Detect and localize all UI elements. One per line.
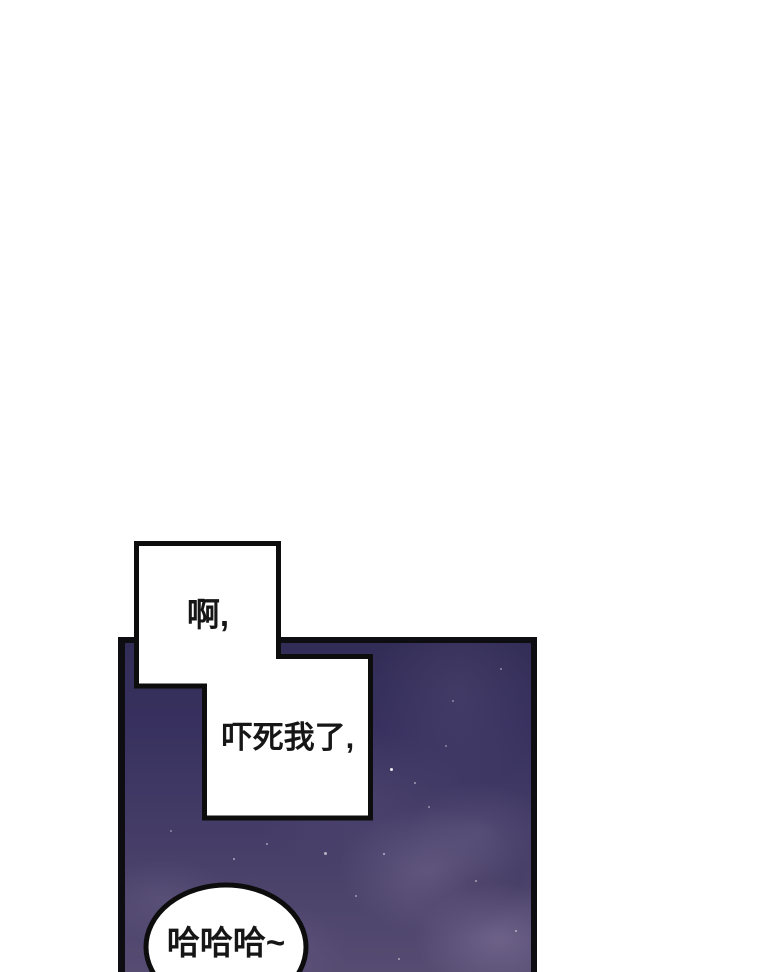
star-dot: [398, 958, 400, 960]
bubble-text-scared: 吓死我了,: [207, 661, 369, 813]
star-dot: [355, 895, 357, 897]
star-dot: [233, 858, 235, 860]
star-dot: [500, 668, 502, 670]
star-dot: [428, 806, 430, 808]
webtoon-page: 啊, 吓死我了, 哈哈哈~: [0, 0, 760, 972]
star-dot: [170, 830, 172, 832]
star-dot: [515, 930, 517, 932]
star-dot: [266, 843, 268, 845]
star-dot: [414, 782, 416, 784]
star-dot: [390, 768, 393, 771]
star-dot: [452, 700, 454, 702]
star-dot: [445, 745, 447, 747]
star-dot: [324, 852, 327, 855]
star-dot: [383, 853, 385, 855]
star-dot: [475, 880, 477, 882]
bubble-text-haha: 哈哈哈~: [146, 884, 306, 972]
